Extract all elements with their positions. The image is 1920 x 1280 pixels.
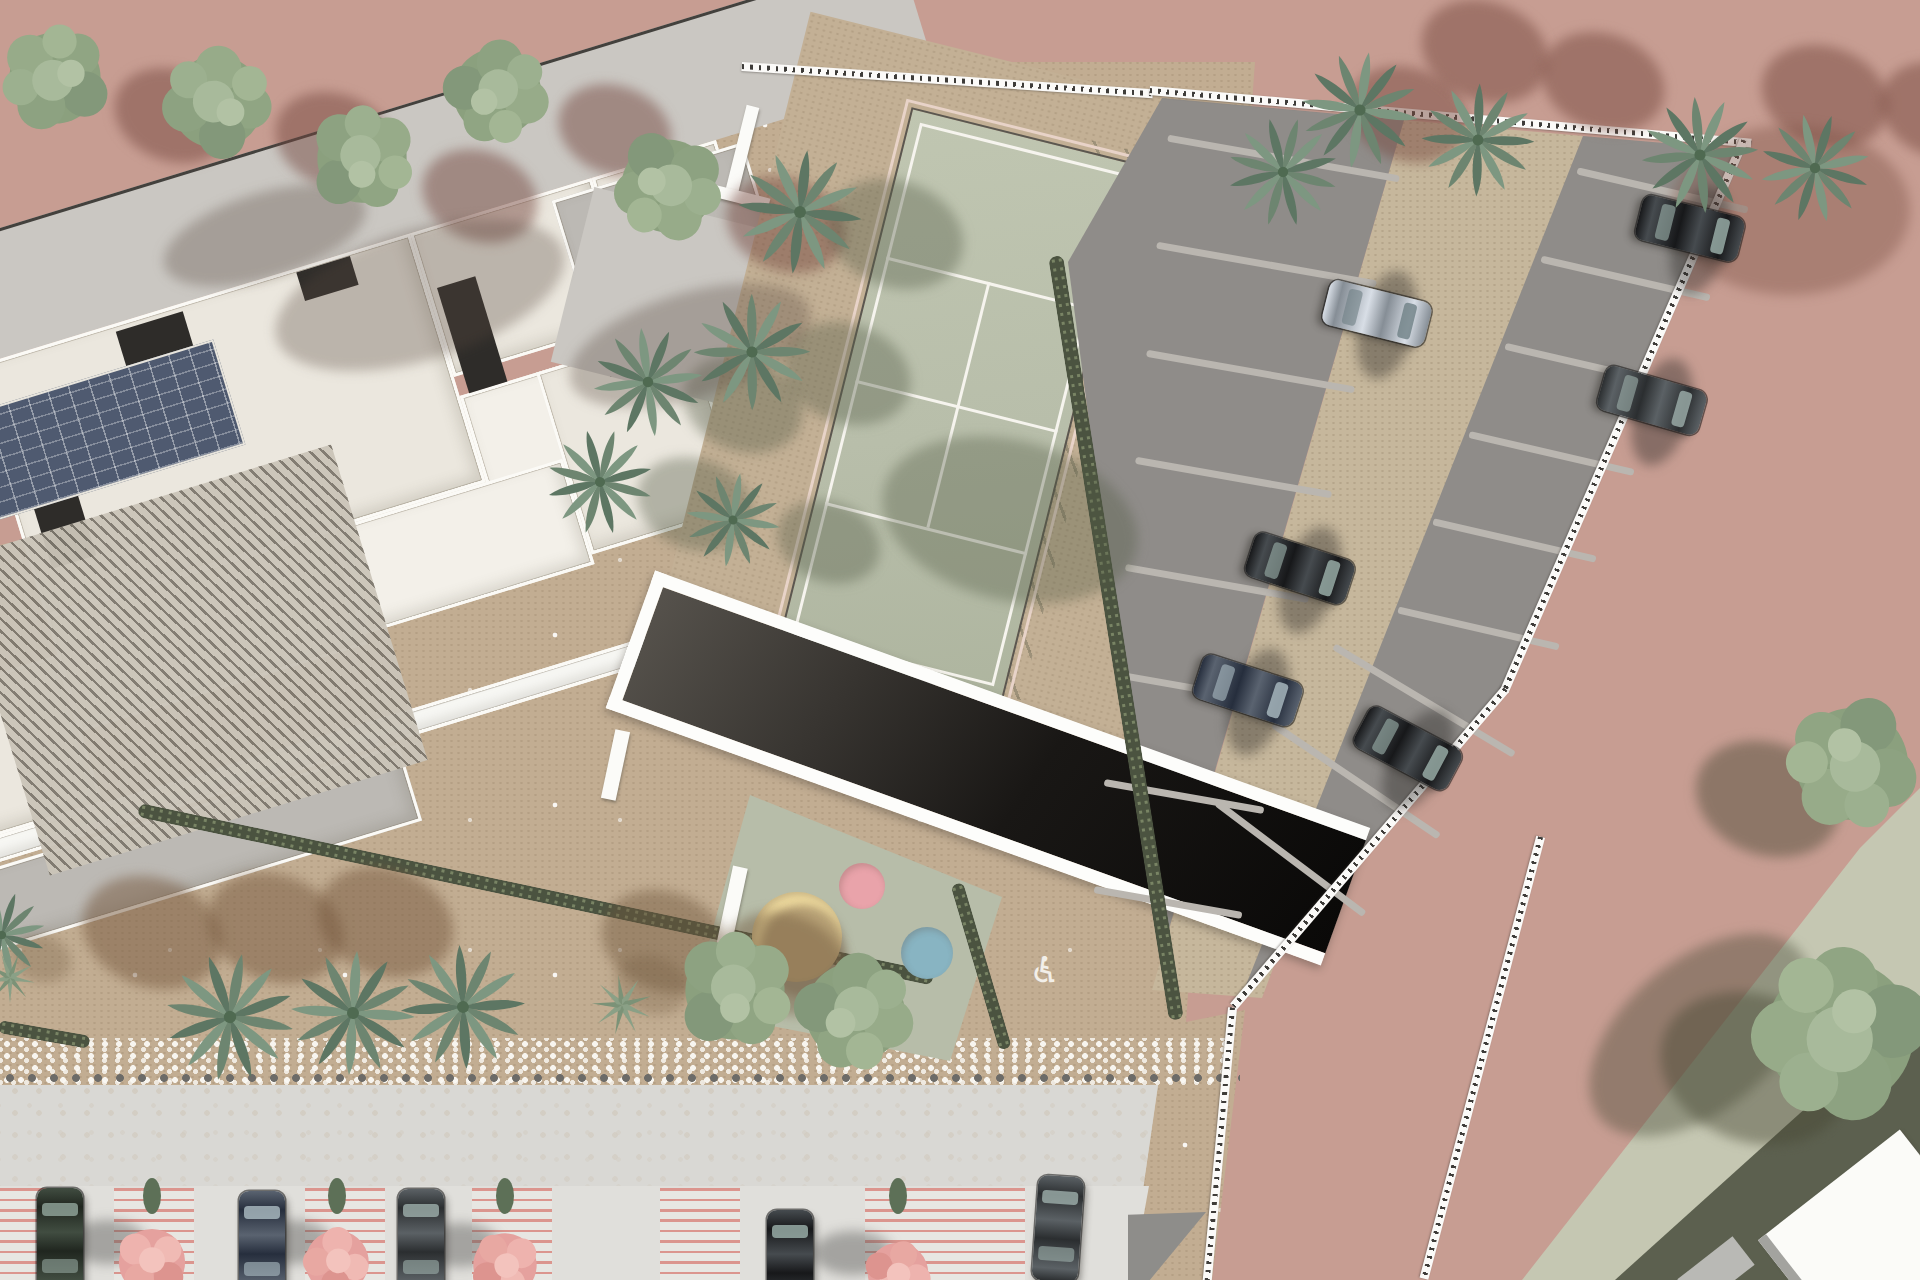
palm-sidewalk-3: [387, 931, 540, 1084]
tree-round-top-0: [0, 21, 112, 135]
agave-0: [0, 948, 40, 1008]
agave-1: [572, 955, 673, 1056]
tree-round-top-2: [293, 89, 432, 228]
tree-blossom-2: [451, 1211, 560, 1280]
palm-court-4: [664, 451, 802, 589]
palm-parking-2: [1413, 75, 1543, 205]
tree-round-top-4: [588, 106, 748, 266]
street-shrub-3: [889, 1178, 907, 1214]
site-plan-canvas: ♿: [0, 0, 1920, 1280]
street-shrub-2: [496, 1178, 514, 1214]
tree-blossom-0: [106, 1216, 198, 1280]
palm-court-0: [734, 146, 866, 278]
tree-round-top-3: [426, 21, 568, 163]
tree-blossom-3: [844, 1219, 953, 1280]
palm-parking-4: [1747, 100, 1883, 236]
layer-trees: [0, 0, 1920, 1280]
tree-blossom-1: [275, 1200, 398, 1280]
street-shrub-0: [143, 1178, 161, 1214]
tree-round-right-1: [1710, 904, 1920, 1164]
tree-round-right-0: [1776, 688, 1920, 840]
tree-round-top-1: [136, 21, 298, 183]
